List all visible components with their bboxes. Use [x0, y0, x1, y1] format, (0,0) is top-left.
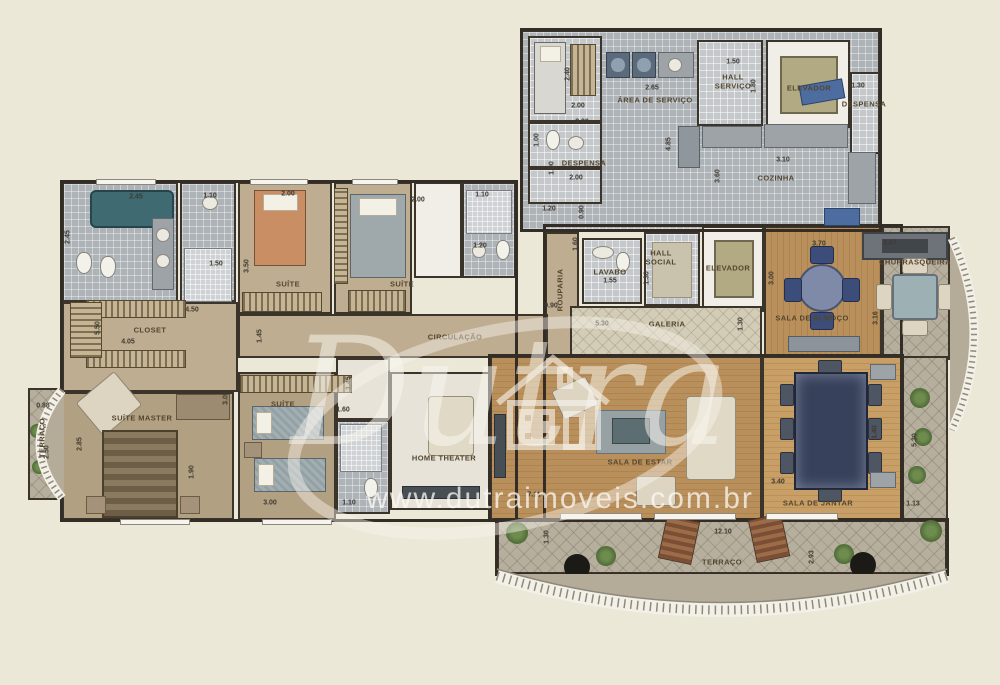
- dimension-label: 3.70: [812, 241, 826, 248]
- dimension-label: 1.90: [189, 465, 196, 479]
- dimension-label: 7.11: [527, 492, 540, 499]
- dimension-label: 2.45: [65, 230, 72, 244]
- room-label: SALA DE ESTAR: [608, 457, 673, 466]
- dimension-label: 3.60: [715, 169, 722, 183]
- dimension-label: 1.00: [549, 161, 556, 175]
- room-label: SUÍTE: [271, 399, 295, 408]
- dimension-label: 1.20: [473, 243, 487, 250]
- room-label: SUÍTE MASTER: [112, 413, 173, 422]
- dimension-label: 1.10: [475, 192, 489, 199]
- room-label: GALERIA: [649, 319, 686, 328]
- room-label: TERRAÇO: [702, 557, 742, 566]
- dimension-label: 1.40: [872, 425, 879, 439]
- dimension-label: 1.80: [751, 79, 758, 93]
- dimension-label: 5.30: [912, 433, 919, 447]
- floor-plan: Dutra www.dutraimoveis.com.br ÁREA DE SE…: [0, 0, 1000, 685]
- dimension-label: 1.45: [257, 329, 264, 343]
- room-label: ELEVADOR: [706, 263, 750, 272]
- dimension-label: 1.00: [534, 133, 541, 147]
- room-label: CHURRASQUEIRA: [879, 257, 951, 266]
- dimension-label: 12.10: [714, 529, 732, 536]
- dimension-label: 0.90: [544, 303, 558, 310]
- room-label: SALA DE JANTAR: [783, 498, 853, 507]
- room-label: HOME THEATER: [412, 453, 476, 462]
- dimension-label: 1.10: [342, 500, 356, 507]
- dimension-label: 2.65: [645, 85, 659, 92]
- dimension-label: 2.85: [77, 437, 84, 451]
- room-label: SALA DE ALMOÇO: [775, 313, 848, 322]
- dimension-label: 4.05: [121, 339, 135, 346]
- room-label: SUÍTE: [390, 279, 414, 288]
- dimension-label: 2.00: [411, 197, 425, 204]
- dimension-label: 5.50: [95, 321, 102, 335]
- dimension-label: 1.30: [544, 530, 551, 544]
- room-label: LAVABO: [594, 267, 627, 276]
- room-label: HALL SOCIAL: [646, 249, 677, 268]
- dimension-label: 2.45: [129, 194, 143, 201]
- room-label: ELEVADOR: [787, 83, 831, 92]
- window-icon: [262, 519, 332, 525]
- dimension-label: 1.30: [738, 317, 745, 331]
- dimension-label: 2.00: [569, 175, 583, 182]
- window-icon: [560, 513, 642, 520]
- dimension-label: 1.60: [336, 407, 350, 414]
- room-label: COZINHA: [758, 173, 795, 182]
- dimension-label: 3.10: [776, 157, 790, 164]
- dimension-label: 1.55: [603, 278, 617, 285]
- dimension-label: 3.40: [771, 479, 785, 486]
- window-icon: [250, 179, 308, 185]
- dimension-label: 3.16: [873, 311, 880, 325]
- dimension-label: 1.30: [851, 83, 865, 90]
- dimension-label: 5.30: [595, 321, 609, 328]
- dimension-label: 3.00: [263, 500, 277, 507]
- dimension-label: 4.50: [185, 307, 199, 314]
- dimension-label: 3.50: [244, 259, 251, 273]
- window-icon: [654, 513, 736, 520]
- dimension-label: 2.00: [575, 119, 589, 126]
- dimension-label: 2.67: [883, 240, 897, 247]
- dimension-label: 2.00: [571, 103, 585, 110]
- dimension-label: 2.40: [565, 67, 572, 81]
- window-icon: [352, 179, 398, 185]
- dimension-label: 2.50: [44, 445, 51, 459]
- dimension-label: 1.60: [573, 237, 580, 251]
- room-label: ÁREA DE SERVIÇO: [617, 95, 692, 104]
- window-icon: [120, 519, 190, 525]
- window-icon: [96, 179, 156, 185]
- room-label: DESPENSA: [842, 99, 886, 108]
- room-label: DESPENSA: [562, 158, 606, 167]
- dimension-label: 0.88: [36, 403, 50, 410]
- dimension-label: 3.05: [223, 391, 230, 405]
- dimension-label: 3.00: [769, 271, 776, 285]
- window-icon: [766, 513, 838, 520]
- dimension-label: 2.93: [809, 550, 816, 564]
- dimension-label: 2.00: [281, 191, 295, 198]
- dimension-label: 1.30: [644, 271, 651, 285]
- dimension-label: 1.13: [906, 501, 920, 508]
- dimension-label: 0.90: [579, 205, 586, 219]
- dimension-label: 1.20: [542, 206, 556, 213]
- dimension-label: 4.85: [666, 137, 673, 151]
- dimension-label: 1.45: [346, 376, 353, 390]
- room-label: CIRCULAÇÃO: [428, 332, 482, 341]
- room-label: HALL SERVIÇO: [715, 73, 751, 92]
- dimension-label: 1.50: [726, 59, 740, 66]
- room-label: SUÍTE: [276, 279, 300, 288]
- dimension-label: 1.10: [203, 193, 217, 200]
- dimension-label: 1.50: [209, 261, 223, 268]
- room-label: CLOSET: [134, 325, 167, 334]
